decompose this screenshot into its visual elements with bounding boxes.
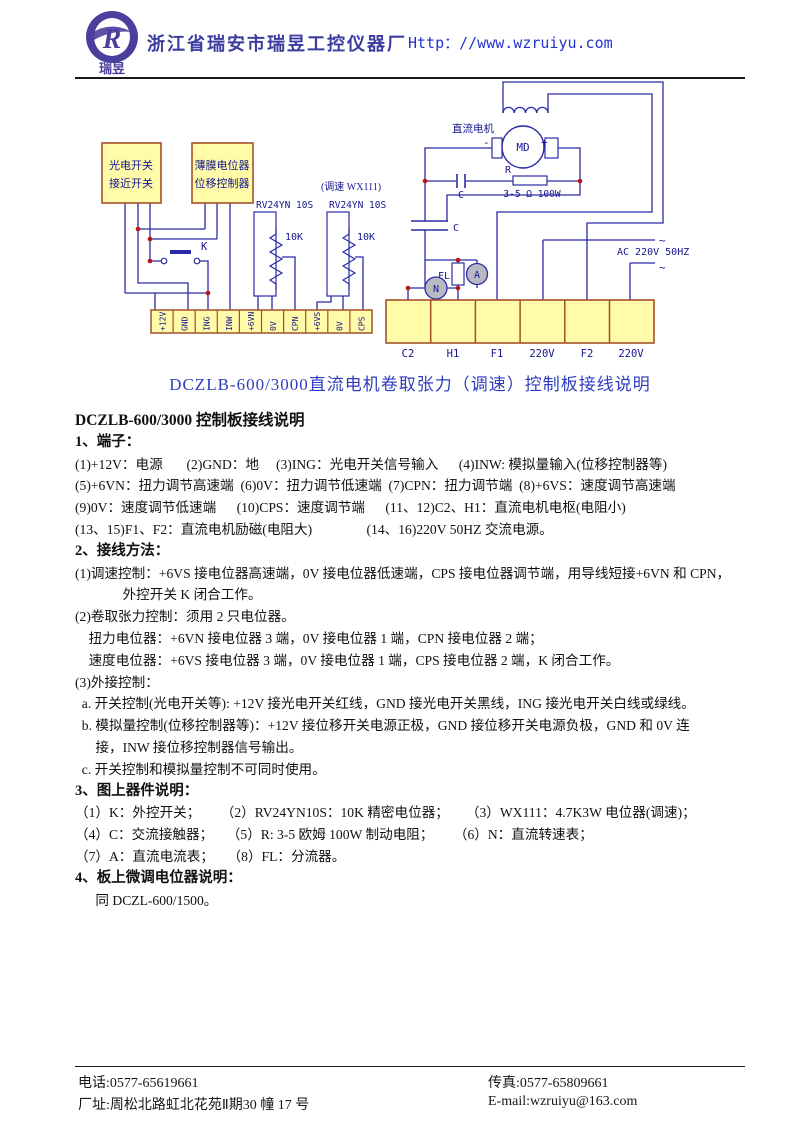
body-line: （4）C：交流接触器； （5）R: 3-5 欧姆 100W 制动电阻； （6）N… <box>75 824 750 846</box>
body-line: 扭力电位器：+6VN 接电位器 3 端，0V 接电位器 1 端，CPN 接电位器… <box>75 628 750 650</box>
terminal-label: 0V <box>335 321 344 331</box>
box2-label-1: 薄膜电位器 <box>195 158 250 172</box>
potentiometer-1: RV24YN 10S 10K <box>254 200 313 296</box>
logo-text: 瑞昱 <box>99 61 125 76</box>
terminal-label: CPS <box>357 316 366 331</box>
pot1-value-label: 10K <box>285 232 303 243</box>
section3-title: 3、图上器件说明： <box>75 781 750 803</box>
brake-resistor: R 3-5 Ω 100W <box>503 165 560 200</box>
footer-email[interactable]: E-mail:wzruiyu@163.com <box>488 1094 637 1110</box>
photoelectric-switch-box: 光电开关 接近开关 <box>102 143 161 203</box>
body-line: (1)+12V：电源 (2)GND：地 (3)ING：光电开关信号输入 (4)I… <box>75 454 750 476</box>
motor-plus-sign: + <box>541 136 548 149</box>
pot2-model-label: RV24YN 10S <box>329 200 386 211</box>
ac-220v-label: AC 220V 50HZ <box>617 247 689 258</box>
wiring-diagram: 光电开关 接近开关 薄膜电位器 位移控制器 K RV24YN 10S 10K R… <box>70 80 760 370</box>
terminal-label: 220V <box>618 348 644 360</box>
body-line: 接，INW 接位移控制器信号输出。 <box>75 737 750 759</box>
company-url[interactable]: Http：//www.wzruiyu.com <box>408 32 613 53</box>
tachometer-n-label: N <box>433 284 439 295</box>
body-line: (13、15)F1、F2：直流电机励磁(电阻大) (14、16)220V 50H… <box>75 519 750 541</box>
body-line: （1）K：外控开关； （2）RV24YN10S：10K 精密电位器； （3）WX… <box>75 802 750 824</box>
film-potentiometer-box: 薄膜电位器 位移控制器 <box>192 143 253 203</box>
box2-label-2: 位移控制器 <box>195 176 250 190</box>
section2-title: 2、接线方法： <box>75 541 750 563</box>
terminal-label: 220V <box>529 348 555 360</box>
footer-address: 厂址:周松北路虹北花苑Ⅱ期30 幢 17 号 <box>78 1094 309 1114</box>
body-line: (1)调速控制：+6VS 接电位器高速端，0V 接电位器低速端，CPS 接电位器… <box>75 563 750 585</box>
document-page: R 瑞昱 浙江省瑞安市瑞昱工控仪器厂 Http：//www.wzruiyu.co… <box>0 0 793 1122</box>
header-divider <box>75 77 745 79</box>
motor-minus-sign: - <box>483 136 490 149</box>
terminal-label: +6VS <box>313 312 322 331</box>
body-line: c. 开关控制和模拟量控制不可同时使用。 <box>75 759 750 781</box>
doc-heading: DCZLB-600/3000 控制板接线说明 <box>75 410 750 432</box>
terminal-label: H1 <box>447 348 460 360</box>
capacitor-c1-label: C <box>458 190 464 201</box>
terminal-label: 0V <box>269 321 278 331</box>
body-line: 同 DCZL-600/1500。 <box>75 890 750 912</box>
diagram-caption: DCZLB-600/3000直流电机卷取张力（调速）控制板接线说明 <box>75 370 745 395</box>
terminal-label: CPN <box>291 316 300 331</box>
terminal-strip-right: C2 H1 F1 220V F2 220V <box>386 300 654 360</box>
document-body: DCZLB-600/3000 控制板接线说明 1、端子： (1)+12V：电源 … <box>75 410 750 911</box>
terminal-label: C2 <box>402 348 415 360</box>
terminal-label: INW <box>225 316 234 331</box>
resistor-r-label: R <box>505 165 512 176</box>
body-line: (9)0V：速度调节低速端 (10)CPS：速度调节端 (11、12)C2、H1… <box>75 497 750 519</box>
terminal-strip-left: +12V GND ING INW +6VN 0V CPN +6VS 0V CPS <box>151 310 372 333</box>
tachometer-n: N <box>425 277 447 299</box>
body-line: (2)卷取张力控制：须用 2 只电位器。 <box>75 606 750 628</box>
footer-phone: 电话:0577-65619661 <box>78 1072 199 1092</box>
body-line: 外控开关 K 闭合工作。 <box>75 584 750 606</box>
body-line: (3)外接控制： <box>75 672 750 694</box>
terminal-label: ING <box>203 316 212 331</box>
terminal-label: GND <box>181 316 190 331</box>
field-coil <box>503 107 548 113</box>
speed-wx111-label: (调速 WX111) <box>321 181 381 193</box>
pot2-value-label: 10K <box>357 232 375 243</box>
pot1-model-label: RV24YN 10S <box>256 200 313 211</box>
ammeter-a: A <box>467 264 488 285</box>
ammeter-a-label: A <box>474 270 480 281</box>
footer-fax: 传真:0577-65809661 <box>488 1072 609 1092</box>
motor-md-label: MD <box>516 141 529 154</box>
terminal-label: F2 <box>581 348 594 360</box>
capacitor-c1: C <box>457 174 465 201</box>
switch-k-label: K <box>201 241 208 253</box>
body-line: （7）A：直流电流表； （8）FL：分流器。 <box>75 846 750 868</box>
dc-motor: MD + - 直流电机 <box>452 122 558 168</box>
motor-brush-left <box>492 138 502 158</box>
section1-title: 1、端子： <box>75 432 750 454</box>
box1-label-2: 接近开关 <box>109 176 153 190</box>
body-line: 速度电位器：+6VS 接电位器 3 端，0V 接电位器 1 端，CPS 接电位器… <box>75 650 750 672</box>
footer-divider <box>75 1066 745 1067</box>
section4-title: 4、板上微调电位器说明： <box>75 868 750 890</box>
ac-tilde-top: ~ <box>659 234 666 247</box>
ac-tilde-bottom: ~ <box>659 261 666 274</box>
company-name: 浙江省瑞安市瑞昱工控仪器厂 <box>147 30 407 56</box>
potentiometer-2: RV24YN 10S 10K (调速 WX111) <box>321 181 387 296</box>
company-logo: R 瑞昱 <box>82 10 142 81</box>
resistor-value-label: 3-5 Ω 100W <box>503 189 560 200</box>
body-line: b. 模拟量控制(位移控制器等)：+12V 接位移开关电源正极，GND 接位移开… <box>75 715 750 737</box>
dc-motor-label: 直流电机 <box>452 122 494 135</box>
terminal-label: +12V <box>159 312 168 331</box>
terminal-label: F1 <box>491 348 504 360</box>
body-line: (5)+6VN：扭力调节高速端 (6)0V：扭力调节低速端 (7)CPN：扭力调… <box>75 475 750 497</box>
body-line: a. 开关控制(光电开关等): +12V 接光电开关红线，GND 接光电开关黑线… <box>75 693 750 715</box>
box1-label-1: 光电开关 <box>109 158 153 172</box>
capacitor-c2: C <box>411 221 459 234</box>
terminal-label: +6VN <box>247 312 256 331</box>
capacitor-c2-label: C <box>453 223 459 234</box>
